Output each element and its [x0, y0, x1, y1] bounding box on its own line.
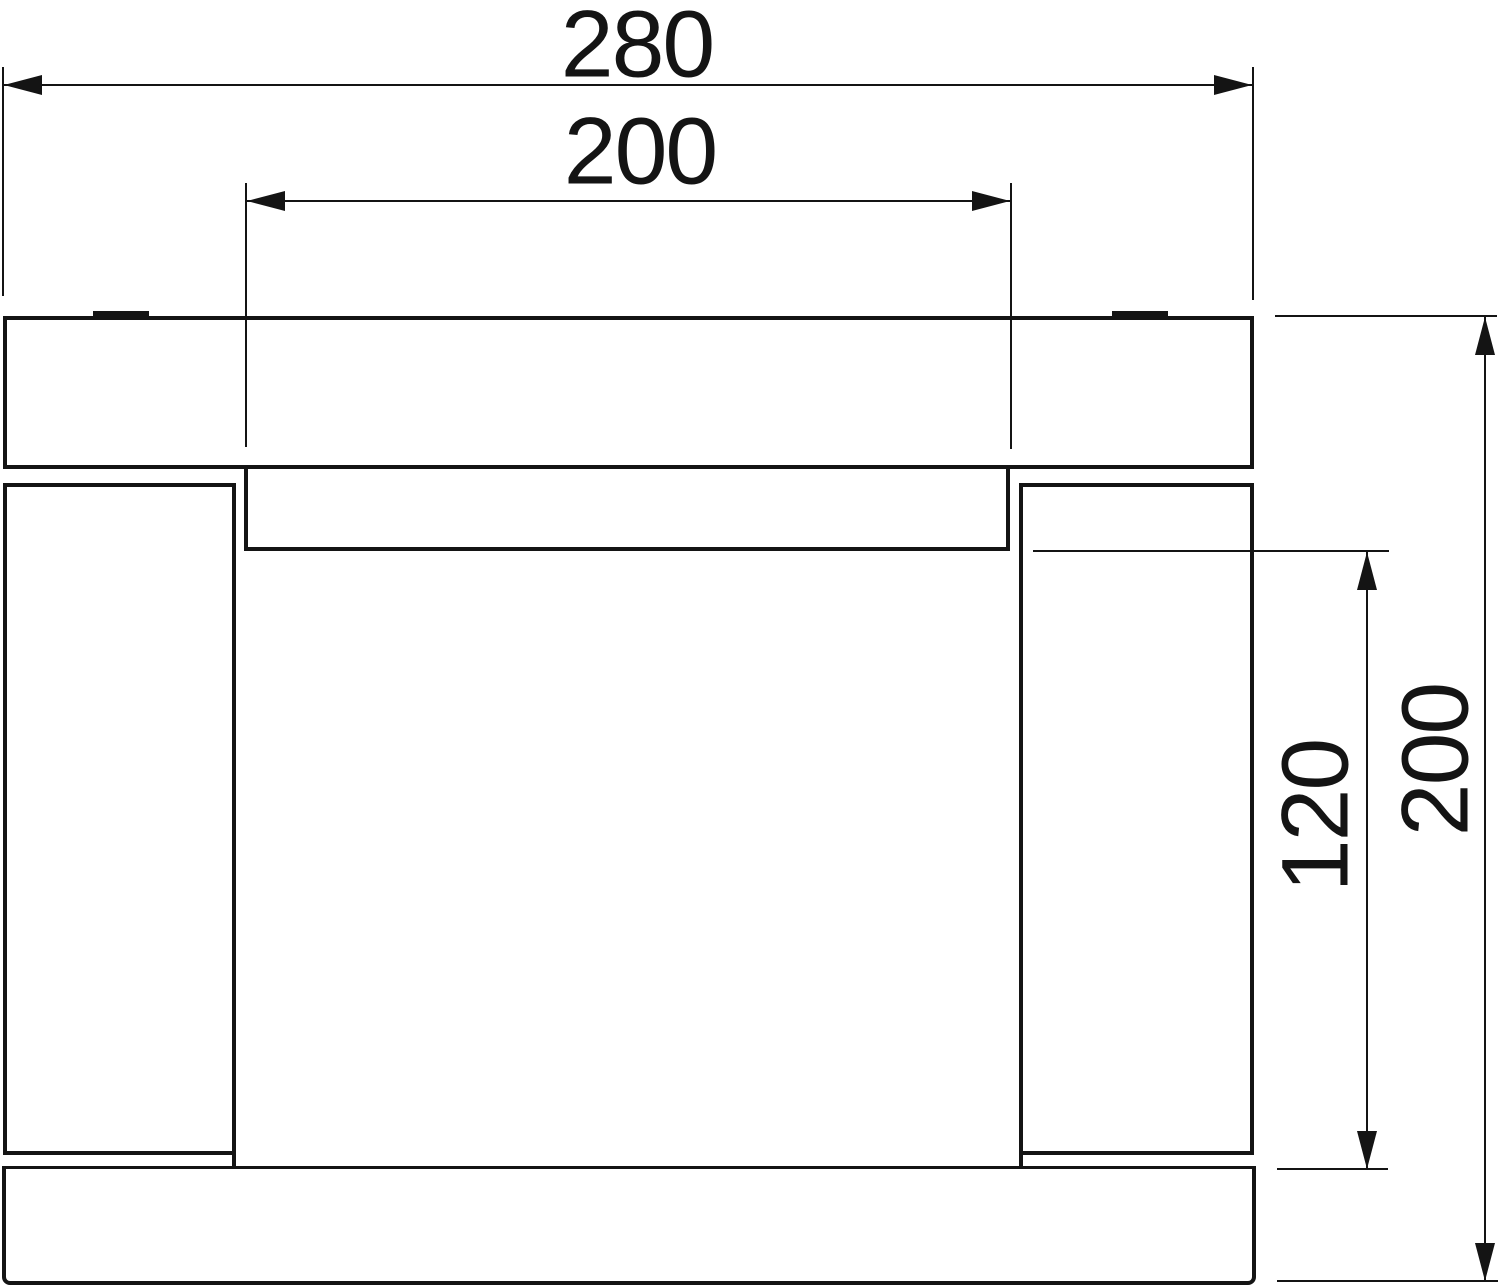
cover-lid-section: [3, 316, 1254, 469]
arrowhead-down-icon: [1357, 1131, 1377, 1169]
dim-label-overall-height: 200: [1389, 684, 1484, 837]
ext-line-opening-width-left: [245, 183, 247, 447]
dim-label-overall-width: 280: [561, 0, 714, 93]
ext-line-overall-height-top: [1275, 315, 1497, 317]
arrowhead-up-icon: [1357, 552, 1377, 590]
ext-line-overall-width-left: [2, 67, 4, 296]
dim-label-opening-width: 200: [564, 105, 717, 200]
ext-line-overall-height-bottom: [1277, 1280, 1498, 1282]
arrowhead-up-icon: [1475, 317, 1495, 355]
base-plate-section: [2, 1166, 1256, 1285]
cover-tongue-section: [244, 465, 1010, 551]
left-wall-section: [3, 483, 236, 1155]
arrowhead-left-icon: [247, 191, 285, 211]
dim-label-inner-depth: 120: [1269, 740, 1364, 893]
arrowhead-left-icon: [4, 75, 42, 95]
ext-line-overall-width-right: [1252, 67, 1254, 300]
right-wall-section: [1019, 483, 1254, 1155]
ext-line-opening-width-right: [1010, 183, 1012, 449]
cover-nub-right: [1112, 311, 1168, 317]
arrowhead-right-icon: [972, 191, 1010, 211]
arrowhead-down-icon: [1475, 1243, 1495, 1281]
ext-line-inner-depth-top: [1033, 550, 1389, 552]
cover-nub-left: [93, 311, 149, 317]
arrowhead-right-icon: [1214, 75, 1252, 95]
drawing-canvas: 280 200 120 200: [0, 0, 1500, 1287]
